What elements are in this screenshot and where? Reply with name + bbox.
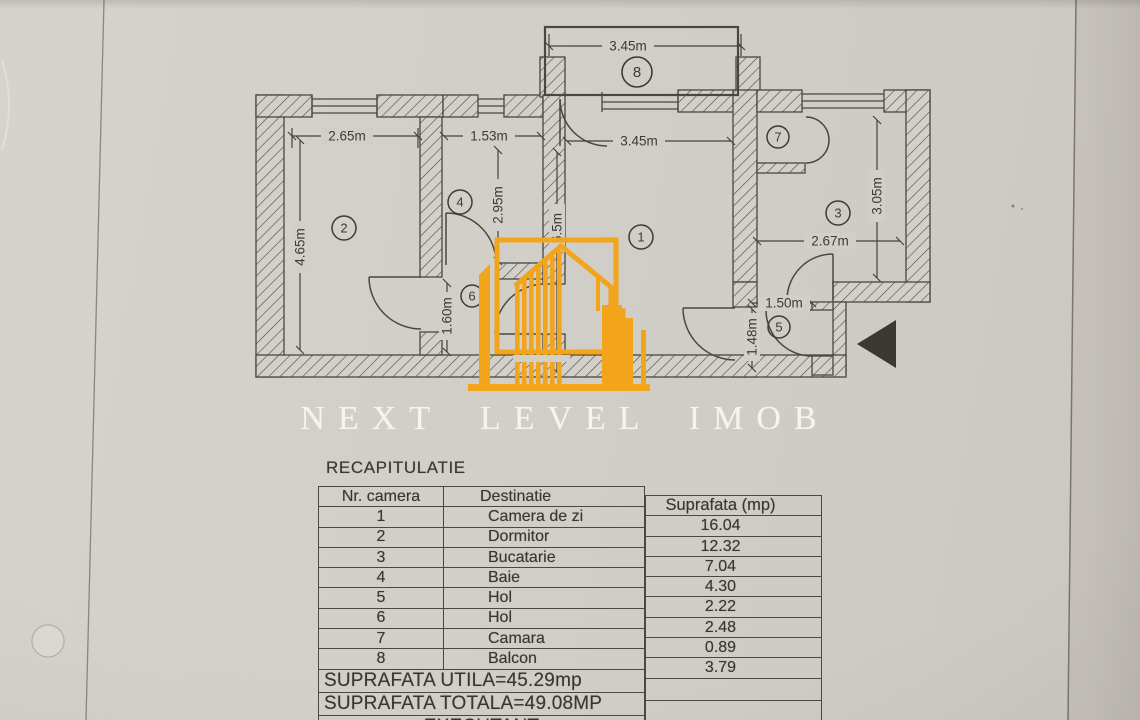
col-header-nr: Nr. camera	[319, 487, 444, 506]
suprafata-value: 2.22	[646, 597, 821, 617]
suprafata-utila: SUPRAFATA UTILA=45.29mp	[319, 670, 644, 693]
suprafata-value: 3.79	[646, 658, 821, 678]
svg-text:2.67m: 2.67m	[811, 234, 849, 249]
balcony-outline	[545, 27, 738, 95]
room-number-7: 7	[767, 126, 789, 148]
empty-cell	[646, 679, 821, 702]
dim-living-width: 3.45m	[613, 133, 665, 149]
dim-hall5-height: 1.48m	[744, 313, 760, 361]
svg-text:1.53m: 1.53m	[470, 129, 508, 144]
brand-name: NEXT LEVEL IMOB	[285, 400, 845, 438]
table-row: 8Balcon	[319, 649, 644, 669]
svg-text:7: 7	[774, 130, 781, 145]
suprafata-value: 4.30	[646, 577, 821, 597]
room-number-3: 3	[826, 201, 850, 225]
suprafata-value: 7.04	[646, 557, 821, 577]
suprafata-totala: SUPRAFATA TOTALA=49.08MP	[319, 693, 644, 716]
dim-kitchen-height: 3.05m	[869, 170, 885, 222]
dim-bath-width: 1.53m	[463, 128, 515, 144]
col-header-suprafata: Suprafata (mp)	[646, 496, 821, 516]
room-number-5: 5	[768, 316, 790, 338]
col-header-dest: Destinatie	[444, 488, 644, 506]
svg-text:8: 8	[633, 64, 641, 81]
table-row: 6Hol	[319, 609, 644, 629]
recap-header-row: Nr. camera Destinatie	[319, 487, 644, 507]
suprafata-value: 16.04	[646, 516, 821, 536]
table-row: 2Dormitor	[319, 528, 644, 548]
room-number-8: 8	[622, 57, 652, 87]
svg-text:3.05m: 3.05m	[870, 177, 885, 215]
dim-balcony-width: 3.45m	[602, 38, 654, 54]
svg-text:1.48m: 1.48m	[745, 318, 760, 356]
svg-text:2.95m: 2.95m	[491, 186, 506, 224]
recap-title: RECAPITULATIE	[326, 458, 466, 478]
svg-text:4.65m: 4.65m	[293, 228, 308, 266]
table-row: 3Bucatarie	[319, 548, 644, 568]
dim-dorm-width: 2.65m	[321, 128, 373, 144]
svg-text:1.50m: 1.50m	[765, 296, 803, 311]
table-row: 4Baie	[319, 568, 644, 588]
room-number-2: 2	[332, 216, 356, 240]
svg-text:2: 2	[340, 221, 347, 236]
dim-kitchen-width: 2.67m	[804, 233, 856, 249]
logo-stripe-gap	[513, 355, 570, 362]
recap-table-left: Nr. camera Destinatie 1Camera de zi 2Dor…	[318, 486, 645, 720]
svg-text:3.45m: 3.45m	[620, 134, 658, 149]
dim-hall5-width: 1.50m	[758, 295, 810, 311]
svg-text:3.45m: 3.45m	[609, 39, 647, 54]
table-row: 1Camera de zi	[319, 507, 644, 527]
executant-row: EXECUTANT	[319, 716, 644, 720]
entrance-arrow-icon	[857, 320, 896, 368]
table-row: 5Hol	[319, 588, 644, 608]
svg-text:3: 3	[834, 206, 841, 221]
table-row: 7Camara	[319, 629, 644, 649]
suprafata-value: 0.89	[646, 638, 821, 658]
dim-bath-height: 2.95m	[490, 179, 506, 231]
suprafata-value: 2.48	[646, 618, 821, 638]
scanned-floorplan-page: 3.45m 2.65m 1.53m 3.45m 2.67m 1.50m 4.65…	[0, 0, 1140, 720]
dim-dorm-height: 4.65m	[292, 221, 308, 273]
recap-table-suprafata: Suprafata (mp) 16.04 12.32 7.04 4.30 2.2…	[645, 495, 822, 720]
empty-cell	[646, 701, 821, 720]
suprafata-value: 12.32	[646, 537, 821, 557]
svg-text:2.65m: 2.65m	[328, 129, 366, 144]
room-number-4: 4	[448, 190, 472, 214]
svg-text:4: 4	[456, 195, 463, 210]
svg-text:5: 5	[775, 320, 782, 335]
next-level-imob-logo	[440, 225, 670, 400]
